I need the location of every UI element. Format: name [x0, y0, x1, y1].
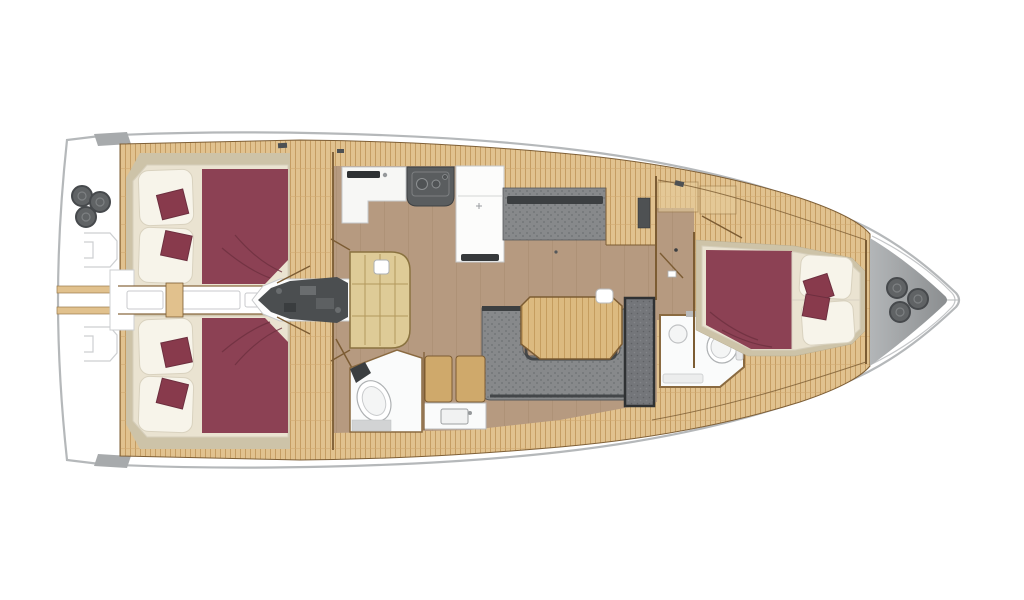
refrigerator [456, 166, 504, 262]
floor-fitting [554, 250, 557, 253]
cushion [161, 231, 193, 261]
door-handle [668, 271, 676, 277]
port-aft-cabin [126, 153, 290, 289]
engine-detail [284, 303, 296, 312]
fridge-vent [461, 254, 499, 261]
cushion [161, 337, 193, 367]
transom-beam-top [57, 286, 118, 293]
yacht-floor-plan [0, 0, 1024, 600]
deck-vent [337, 149, 344, 153]
sofa-arm-cap [482, 306, 523, 311]
faucet [383, 173, 387, 177]
bath-mat [352, 420, 391, 431]
engine-detail [316, 298, 334, 309]
engine-detail [300, 286, 316, 295]
shower-grate [625, 298, 654, 406]
table-cup [596, 289, 613, 303]
floor-plan-canvas [0, 0, 1024, 600]
mast-foot [374, 260, 389, 274]
hanging-locker [638, 198, 650, 228]
berth-infill-panel [127, 291, 163, 309]
shower-bench [456, 356, 485, 402]
faucet [468, 411, 472, 415]
salon-settee [503, 188, 606, 240]
deck-vent [278, 143, 287, 148]
wash-basin [669, 325, 687, 343]
settee-backrest [507, 196, 603, 204]
transom-beam-bottom [57, 307, 118, 314]
burner [443, 175, 448, 180]
vanity-sink [441, 409, 468, 424]
forward-entry-sole [656, 208, 694, 320]
shower-bench [425, 356, 452, 402]
starboard-aft-cabin [126, 313, 290, 449]
bed-blanket [202, 169, 288, 284]
burner [417, 179, 428, 190]
cushion [802, 294, 829, 320]
floor-fitting [674, 248, 678, 252]
corridor-beam [166, 283, 183, 317]
stove [407, 167, 454, 206]
bath-mat [663, 374, 703, 383]
engine-detail [276, 288, 282, 294]
salon-table [521, 297, 622, 359]
burner [432, 180, 440, 188]
galley-sink [347, 171, 380, 178]
engine-detail [335, 307, 341, 313]
